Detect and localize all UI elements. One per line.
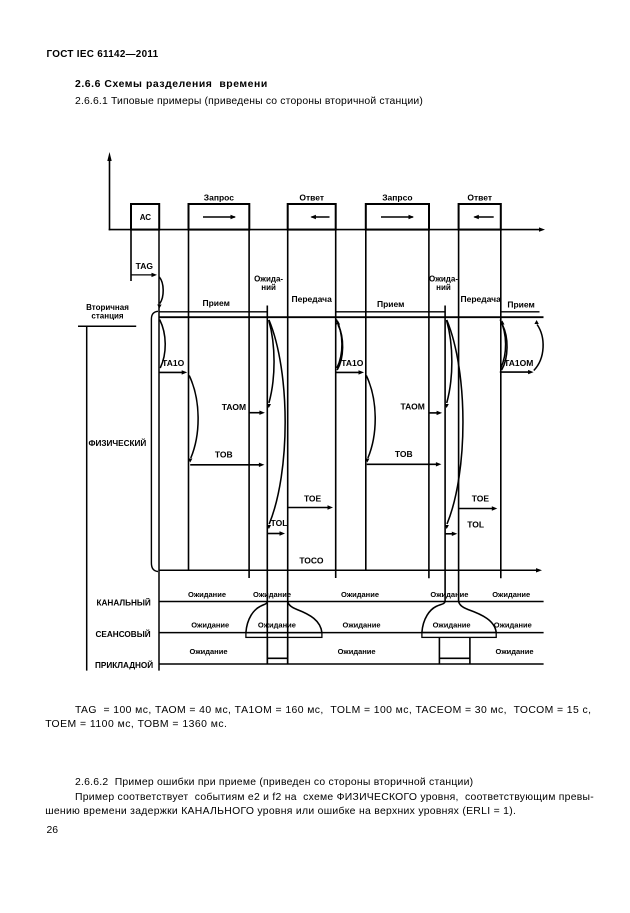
svg-text:ТОВ: ТОВ: [215, 449, 233, 459]
svg-text:Ожидание: Ожидание: [189, 647, 227, 656]
svg-text:СЕАНСОВЫЙ: СЕАНСОВЫЙ: [96, 628, 151, 639]
svg-text:Передача: Передача: [461, 294, 502, 304]
svg-text:ФИЗИЧЕСКИЙ: ФИЗИЧЕСКИЙ: [89, 437, 147, 448]
svg-text:Ожидание: Ожидание: [341, 590, 379, 599]
svg-text:Передача: Передача: [292, 294, 333, 304]
svg-text:КАНАЛЬНЫЙ: КАНАЛЬНЫЙ: [97, 597, 151, 608]
svg-text:ТА1ОМ: ТА1ОМ: [504, 358, 533, 368]
svg-text:ТАОМ: ТАОМ: [222, 402, 246, 412]
svg-text:Ожидание: Ожидание: [253, 590, 291, 599]
svg-text:Ожидание: Ожидание: [494, 620, 532, 629]
svg-text:TOL: TOL: [467, 520, 484, 530]
svg-text:Ожидание: Ожидание: [191, 620, 229, 629]
svg-text:Запрос: Запрос: [204, 193, 234, 203]
svg-text:Ожидание: Ожидание: [258, 620, 296, 629]
svg-text:Запрсо: Запрсо: [382, 193, 412, 203]
svg-text:Ответ: Ответ: [467, 193, 492, 203]
svg-text:TOL: TOL: [271, 518, 288, 528]
svg-text:Ожидание: Ожидание: [433, 620, 471, 629]
svg-text:ТОЕ: ТОЕ: [472, 493, 490, 503]
svg-text:ТОСО: ТОСО: [299, 555, 324, 565]
svg-text:ТОЕ: ТОЕ: [304, 494, 322, 504]
svg-text:Ожидание: Ожидание: [188, 590, 226, 599]
svg-text:АС: АС: [140, 213, 152, 222]
svg-text:Прием: Прием: [507, 300, 534, 310]
svg-text:Ответ: Ответ: [299, 193, 324, 203]
svg-text:ПРИКЛАДНОЙ: ПРИКЛАДНОЙ: [95, 659, 153, 670]
svg-text:Ожидание: Ожидание: [495, 647, 533, 656]
svg-text:Прием: Прием: [202, 298, 229, 308]
svg-text:Ожидание: Ожидание: [492, 590, 530, 599]
svg-text:ТА1О: ТА1О: [162, 358, 185, 368]
svg-text:Ожидание: Ожидание: [338, 647, 376, 656]
svg-text:ТОВ: ТОВ: [395, 449, 413, 459]
svg-text:станция: станция: [91, 311, 123, 320]
svg-text:Прием: Прием: [377, 299, 404, 309]
svg-text:ний: ний: [436, 283, 451, 292]
svg-text:Ожидание: Ожидание: [342, 620, 380, 629]
svg-text:TAG: TAG: [136, 261, 154, 271]
svg-text:ний: ний: [261, 283, 276, 292]
svg-text:ТАОМ: ТАОМ: [401, 401, 425, 411]
svg-text:ТА1О: ТА1О: [341, 358, 364, 368]
svg-text:Ожидание: Ожидание: [430, 590, 468, 599]
